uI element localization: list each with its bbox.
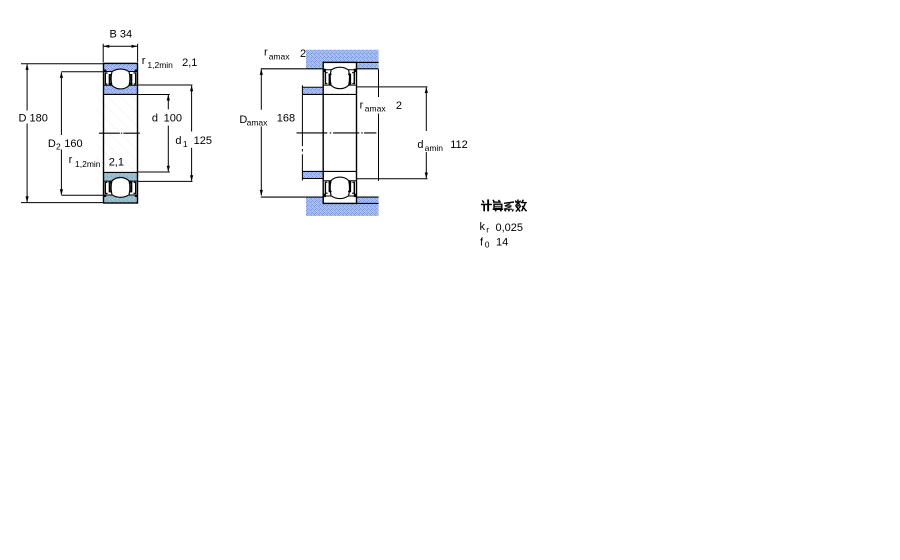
svg-text:2,1: 2,1	[182, 57, 197, 69]
svg-text:r: r	[142, 55, 146, 67]
svg-text:r: r	[486, 225, 489, 235]
svg-text:D: D	[48, 138, 56, 150]
svg-text:0,025: 0,025	[496, 222, 524, 234]
svg-text:amax: amax	[269, 51, 291, 61]
svg-text:amin: amin	[425, 143, 444, 153]
svg-text:amax: amax	[365, 103, 387, 113]
svg-text:112: 112	[450, 139, 468, 151]
svg-text:r: r	[69, 154, 73, 166]
svg-text:D 180: D 180	[19, 113, 48, 125]
svg-text:125: 125	[194, 135, 212, 147]
svg-text:14: 14	[496, 237, 508, 249]
svg-text:k: k	[480, 221, 486, 233]
svg-text:d: d	[175, 135, 181, 147]
svg-text:1: 1	[183, 139, 188, 149]
svg-text:0: 0	[485, 240, 490, 250]
svg-text:1,2min: 1,2min	[75, 159, 101, 169]
svg-text:1,2min: 1,2min	[147, 60, 173, 70]
svg-text:B 34: B 34	[110, 29, 133, 41]
svg-text:2: 2	[396, 100, 402, 112]
svg-text:100: 100	[164, 113, 182, 125]
svg-text:r: r	[360, 99, 364, 111]
svg-text:168: 168	[277, 113, 295, 125]
svg-text:d: d	[417, 139, 423, 151]
svg-text:2: 2	[300, 48, 306, 60]
svg-text:2: 2	[56, 142, 61, 152]
svg-text:f: f	[480, 237, 484, 249]
svg-text:160: 160	[64, 138, 82, 150]
svg-text:amax: amax	[247, 118, 269, 128]
svg-text:2,1: 2,1	[109, 157, 124, 169]
svg-text:r: r	[264, 47, 268, 59]
svg-text:d: d	[152, 113, 158, 125]
